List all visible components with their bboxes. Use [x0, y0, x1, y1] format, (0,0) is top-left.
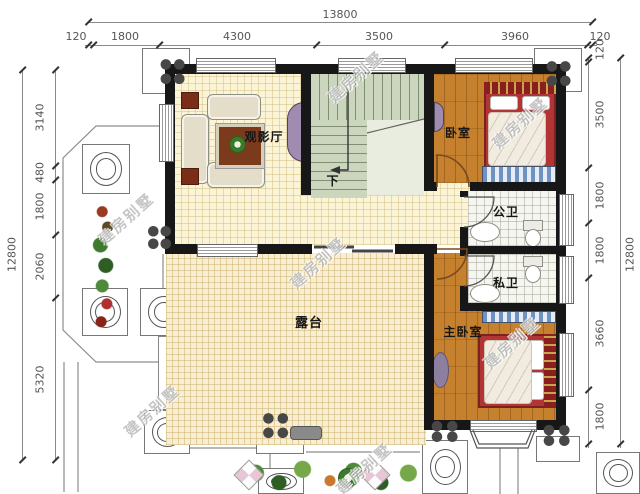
dim-label: 12800 — [624, 225, 637, 285]
bay-window-outline — [470, 430, 535, 448]
dim-label: 13800 — [290, 8, 390, 21]
dim-label: 1800 — [594, 387, 607, 447]
dim-label: 12800 — [6, 225, 19, 285]
dim-label: 3960 — [485, 30, 545, 43]
room-label-master: 主卧室 — [434, 323, 492, 340]
dim-label: 4300 — [207, 30, 267, 43]
floor-plan: 观影厅 卧室 公卫 私卫 主卧室 露台 下 13800 120 1800 430… — [0, 0, 640, 494]
dim-line-right-total — [620, 58, 621, 448]
stair-break-line — [367, 119, 424, 133]
room-label-bedroom: 卧室 — [436, 124, 480, 141]
dim-label: 1800 — [95, 30, 155, 43]
dim-line-top-segments — [85, 45, 597, 46]
dim-label: 1800 — [594, 221, 607, 281]
dim-label: 3140 — [34, 88, 47, 148]
room-label-theater: 观影厅 — [228, 128, 300, 145]
stair-direction-arrow — [338, 88, 348, 170]
dim-line-left-segments — [55, 70, 56, 460]
dim-label: 120 — [56, 30, 96, 43]
dim-label: 3660 — [594, 304, 607, 364]
dim-label: 120 — [594, 20, 607, 80]
bedroom-door — [437, 155, 469, 187]
dim-line-top-total — [88, 22, 592, 23]
dim-label: 2060 — [34, 237, 47, 297]
room-label-private-bath: 私卫 — [486, 274, 526, 291]
sliding-door-terrace — [314, 247, 393, 251]
room-label-public-bath: 公卫 — [486, 203, 526, 220]
dim-label: 1800 — [594, 166, 607, 226]
dim-label: 5320 — [34, 350, 47, 410]
stairs-down-label: 下 — [324, 172, 342, 189]
room-label-terrace: 露台 — [286, 312, 332, 331]
dim-label: 3500 — [594, 85, 607, 145]
dim-label: 1800 — [34, 177, 47, 237]
master-door — [437, 249, 467, 279]
door-detail-lines — [0, 0, 640, 494]
dim-label: 3500 — [349, 30, 409, 43]
dim-line-left-total — [22, 70, 23, 460]
